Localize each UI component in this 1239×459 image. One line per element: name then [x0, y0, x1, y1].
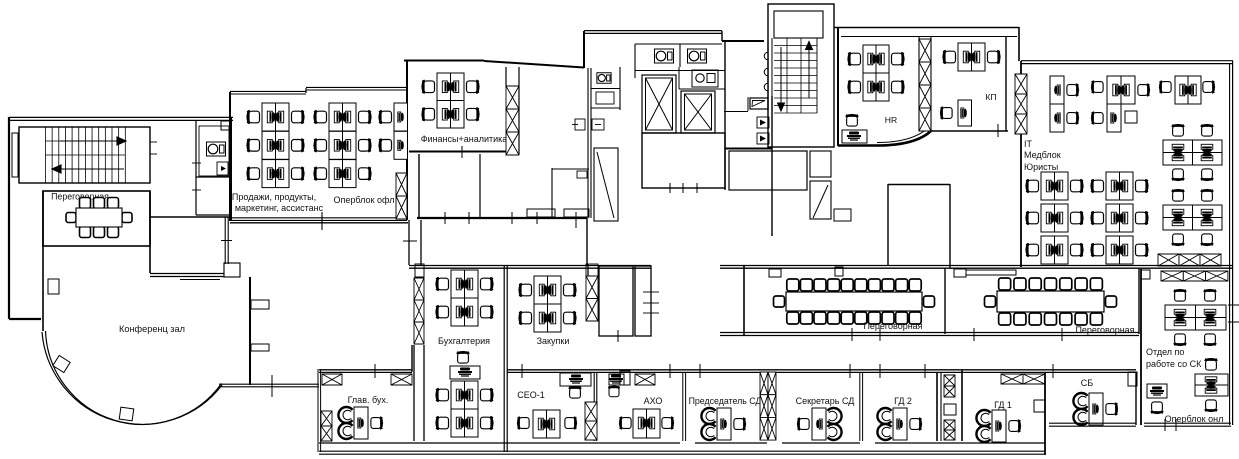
- svg-text:Глав. бух.: Глав. бух.: [348, 395, 389, 405]
- svg-text:Юристы: Юристы: [1024, 162, 1058, 172]
- svg-text:СЕО-1: СЕО-1: [517, 390, 545, 400]
- svg-text:Секретарь СД: Секретарь СД: [796, 396, 855, 406]
- svg-text:маркетинг, ассистанс: маркетинг, ассистанс: [235, 203, 324, 213]
- svg-text:HR: HR: [885, 115, 897, 125]
- svg-text:Переговорная: Переговорная: [1075, 325, 1134, 335]
- svg-text:Председатель СД: Председатель СД: [689, 396, 762, 406]
- svg-text:IT: IT: [1024, 139, 1033, 149]
- svg-text:Отдел по: Отдел по: [1146, 347, 1184, 357]
- svg-text:Медблок: Медблок: [1024, 150, 1061, 160]
- svg-text:работе со СК: работе со СК: [1146, 359, 1202, 369]
- svg-text:Закупки: Закупки: [537, 336, 570, 346]
- svg-text:Продажи, продукты,: Продажи, продукты,: [232, 192, 316, 202]
- svg-text:Конференц зал: Конференц зал: [119, 324, 185, 334]
- svg-text:Финансы+аналитика: Финансы+аналитика: [421, 134, 508, 144]
- svg-text:АХО: АХО: [644, 396, 663, 406]
- svg-text:КП: КП: [985, 92, 996, 102]
- svg-text:ГД 1: ГД 1: [994, 400, 1012, 410]
- svg-text:Оперблок офл: Оперблок офл: [334, 195, 395, 205]
- svg-text:СБ: СБ: [1081, 378, 1093, 388]
- svg-text:Переговорная: Переговорная: [863, 321, 922, 331]
- svg-text:ГД 2: ГД 2: [894, 396, 912, 406]
- svg-text:Бухгалтерия: Бухгалтерия: [438, 336, 490, 346]
- svg-text:Оперблок онл: Оперблок онл: [1165, 414, 1224, 424]
